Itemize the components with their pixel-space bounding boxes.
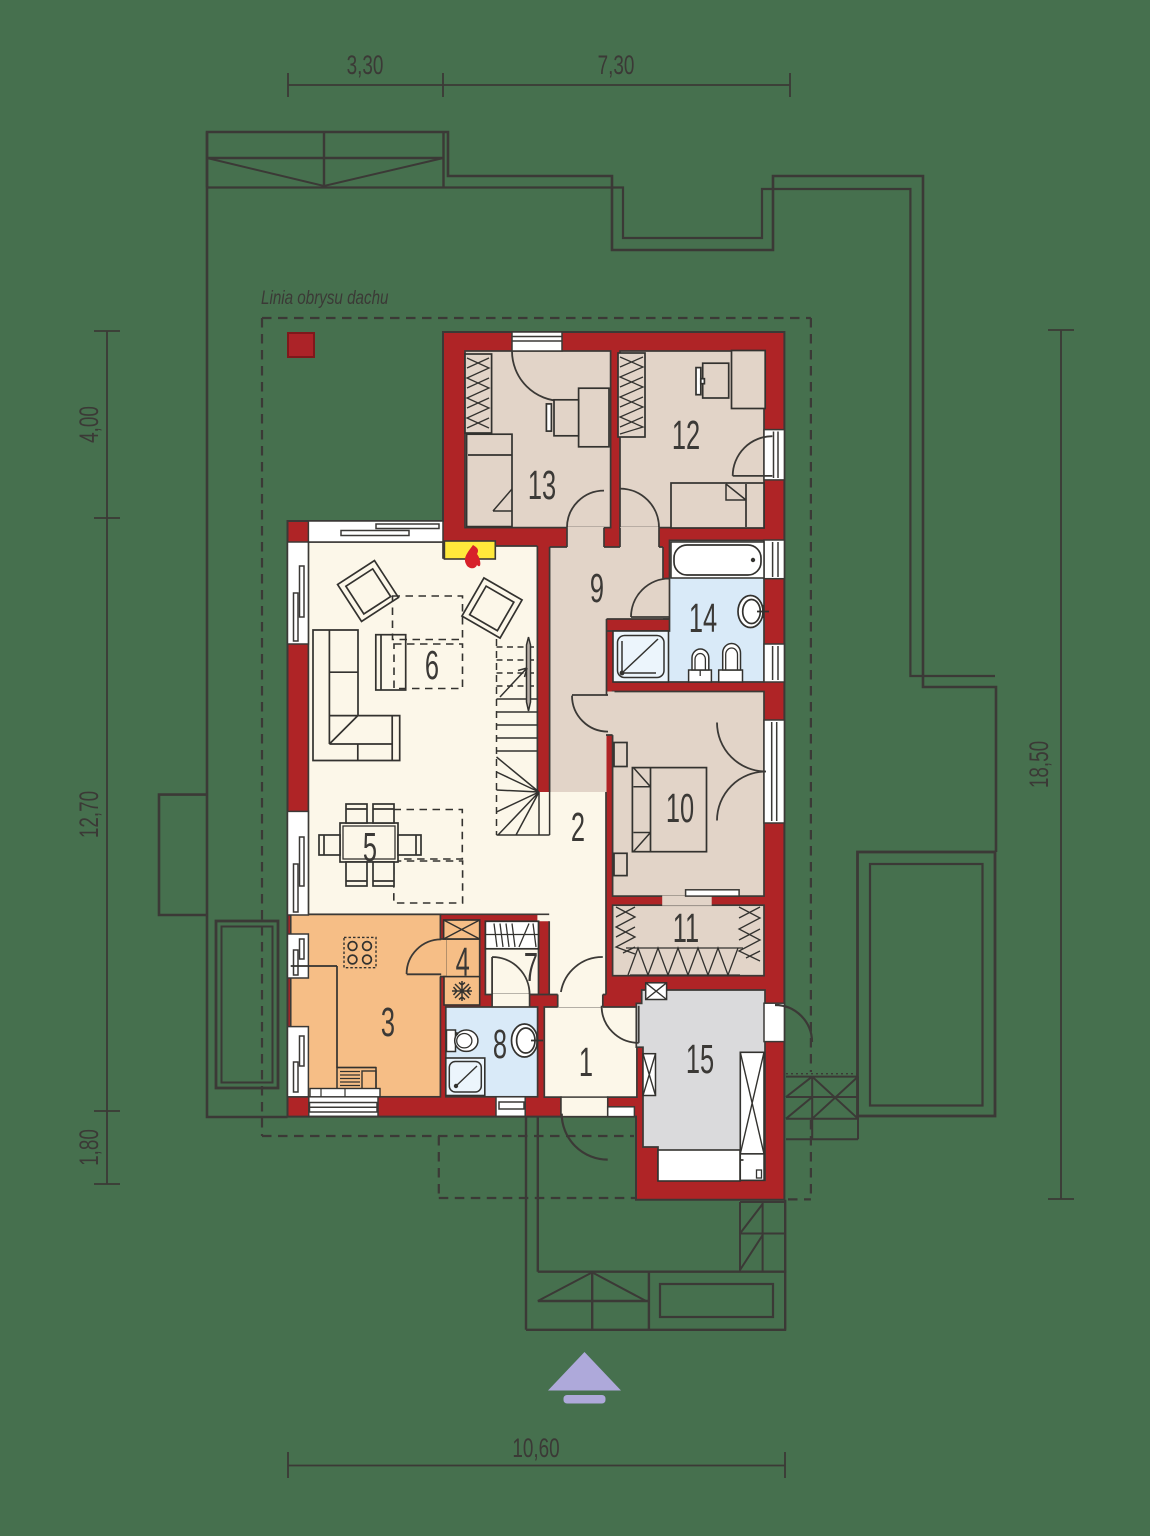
svg-text:7: 7 bbox=[524, 945, 538, 991]
svg-text:4,00: 4,00 bbox=[74, 406, 104, 443]
svg-text:1: 1 bbox=[579, 1040, 593, 1086]
svg-text:5: 5 bbox=[363, 825, 377, 871]
svg-text:15: 15 bbox=[686, 1037, 714, 1083]
svg-text:9: 9 bbox=[590, 566, 604, 612]
svg-text:11: 11 bbox=[673, 906, 699, 952]
svg-text:12,70: 12,70 bbox=[74, 791, 104, 838]
svg-text:18,50: 18,50 bbox=[1024, 741, 1054, 788]
svg-text:2: 2 bbox=[571, 805, 585, 851]
svg-text:3: 3 bbox=[381, 1000, 395, 1046]
svg-text:7,30: 7,30 bbox=[598, 50, 635, 80]
svg-text:6: 6 bbox=[425, 643, 439, 689]
svg-text:8: 8 bbox=[493, 1022, 507, 1068]
svg-text:3,30: 3,30 bbox=[347, 50, 384, 80]
svg-text:10: 10 bbox=[666, 786, 694, 832]
svg-text:13: 13 bbox=[528, 463, 556, 509]
svg-text:10,60: 10,60 bbox=[512, 1433, 559, 1463]
svg-text:4: 4 bbox=[456, 940, 470, 986]
svg-text:12: 12 bbox=[672, 413, 700, 459]
svg-text:1,80: 1,80 bbox=[74, 1129, 104, 1166]
svg-text:Linia obrysu dachu: Linia obrysu dachu bbox=[261, 286, 389, 308]
svg-text:14: 14 bbox=[689, 596, 717, 642]
